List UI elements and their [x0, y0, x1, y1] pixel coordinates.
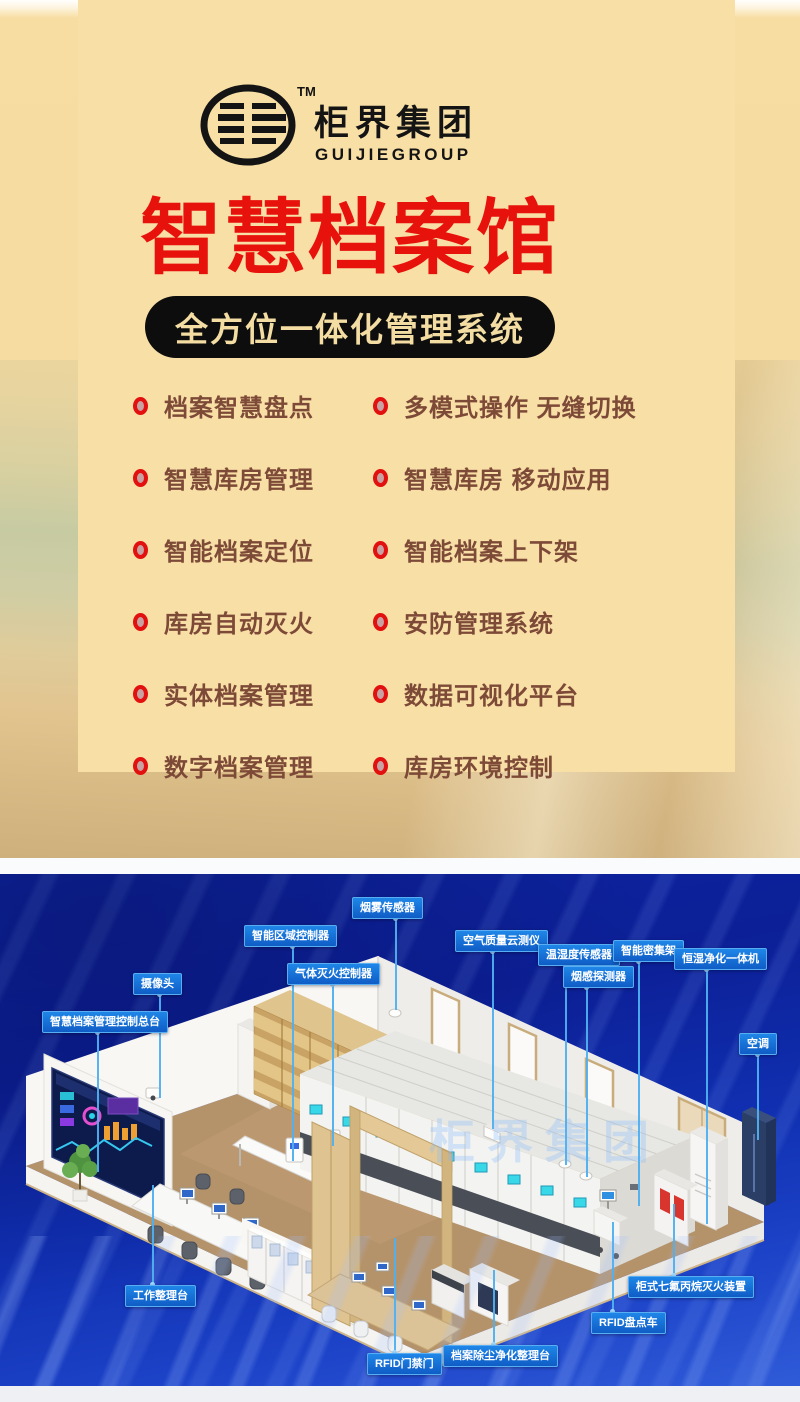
feature-label: 数字档案管理	[164, 748, 314, 783]
desk-monitors	[352, 1262, 426, 1310]
feature-item: 智慧库房 移动应用	[373, 460, 637, 495]
feature-item: 实体档案管理	[133, 676, 373, 711]
copier	[432, 1264, 476, 1318]
poster-page: TM 柜界集团 GUIJIEGROUP 智慧档案馆 全方位一体化管理系统 档案智…	[0, 0, 800, 1402]
brand-name-cn: 柜界集团	[314, 104, 478, 143]
watermark: 柜界集团	[429, 1116, 661, 1168]
isometric-room-illustration: 柜界集团	[0, 874, 800, 1386]
bullet-icon	[133, 757, 148, 775]
feature-item: 库房自动灭火	[133, 604, 373, 639]
feature-label: 多模式操作 无缝切换	[404, 388, 637, 423]
feature-label: 智慧库房管理	[164, 460, 314, 495]
subtitle-pill: 全方位一体化管理系统	[145, 296, 555, 358]
dust-cleaning-station	[470, 1263, 520, 1326]
feature-item: 智能档案定位	[133, 532, 373, 567]
page-title: 智慧档案馆	[70, 198, 630, 280]
feature-label: 库房自动灭火	[164, 604, 314, 639]
feature-list: 档案智慧盘点多模式操作 无缝切换智慧库房管理智慧库房 移动应用智能档案定位智能档…	[133, 388, 637, 783]
feature-item: 库房环境控制	[373, 748, 637, 783]
feature-label: 智能档案定位	[164, 532, 314, 567]
feature-item: 安防管理系统	[373, 604, 637, 639]
feature-label: 智慧库房 移动应用	[404, 460, 612, 495]
bullet-icon	[133, 685, 148, 703]
feature-label: 智能档案上下架	[404, 532, 579, 567]
desk-chairs	[322, 1306, 402, 1352]
feature-item: 智慧库房管理	[133, 460, 373, 495]
humidity-purifier-cabinet	[690, 1126, 728, 1230]
feature-item: 数字档案管理	[133, 748, 373, 783]
bullet-icon	[133, 397, 148, 415]
cabinet-oval-logo-icon	[204, 88, 292, 162]
bullet-icon	[373, 685, 388, 703]
smoke-detector-device	[580, 1172, 592, 1180]
air-conditioner-unit	[742, 1107, 776, 1206]
bullet-icon	[373, 469, 388, 487]
hero-section: TM 柜界集团 GUIJIEGROUP 智慧档案馆 全方位一体化管理系统 档案智…	[0, 0, 800, 858]
scene-section: 柜界集团	[0, 874, 800, 1386]
hero-content: TM 柜界集团 GUIJIEGROUP 智慧档案馆 全方位一体化管理系统	[70, 0, 630, 358]
zone-controller-device	[286, 1138, 303, 1162]
brand-name-en: GUIJIEGROUP	[315, 145, 472, 164]
section-divider	[0, 858, 800, 874]
bullet-icon	[133, 469, 148, 487]
office-desk-cluster	[308, 1262, 460, 1352]
feature-item: 多模式操作 无缝切换	[373, 388, 637, 423]
bullet-icon	[373, 397, 388, 415]
feature-label: 安防管理系统	[404, 604, 554, 639]
feature-label: 数据可视化平台	[404, 676, 579, 711]
feature-label: 档案智慧盘点	[164, 388, 314, 423]
brand-logo: TM 柜界集团 GUIJIEGROUP	[200, 80, 500, 172]
footer-strip	[0, 1386, 800, 1402]
bullet-icon	[133, 541, 148, 559]
feature-item: 数据可视化平台	[373, 676, 637, 711]
feature-item: 档案智慧盘点	[133, 388, 373, 423]
bullet-icon	[373, 757, 388, 775]
feature-label: 实体档案管理	[164, 676, 314, 711]
bullet-icon	[373, 613, 388, 631]
bullet-icon	[373, 541, 388, 559]
trademark-mark: TM	[297, 84, 316, 99]
bullet-icon	[133, 613, 148, 631]
feature-item: 智能档案上下架	[373, 532, 637, 567]
smoke-sensor-device	[389, 1009, 401, 1017]
feature-label: 库房环境控制	[404, 748, 554, 783]
